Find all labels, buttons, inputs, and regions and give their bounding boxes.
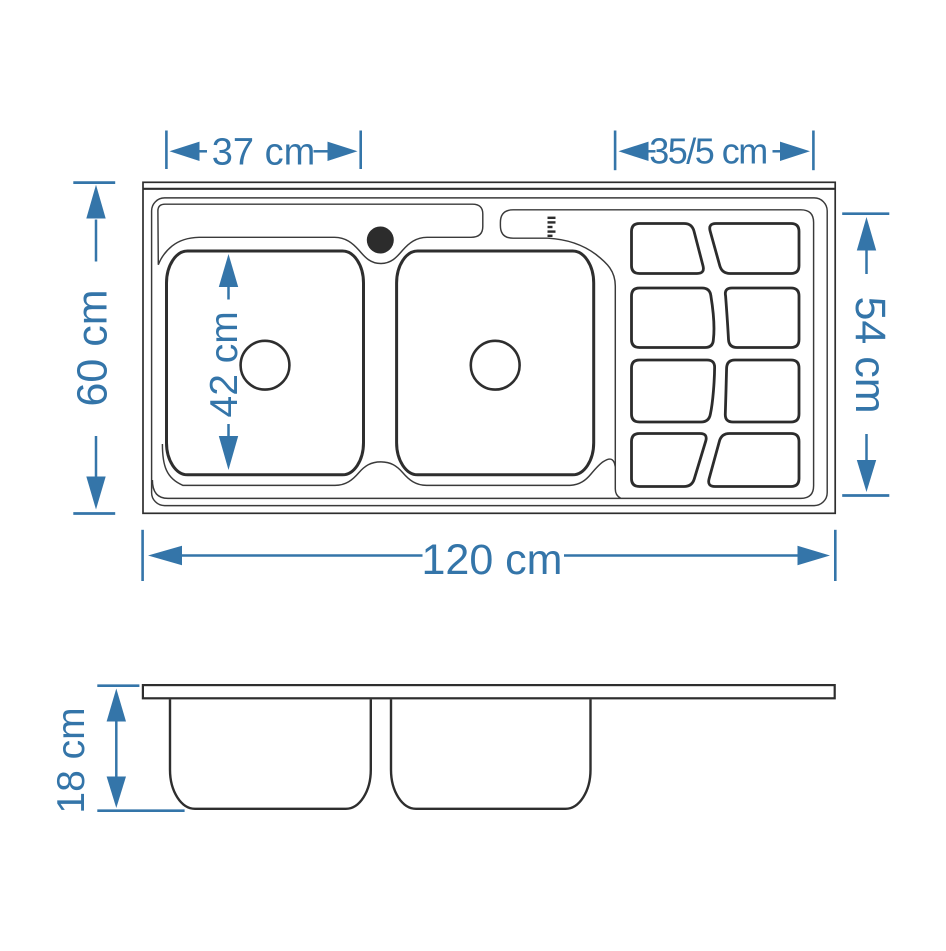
svg-text:60 cm: 60 cm bbox=[69, 289, 117, 406]
svg-text:18 cm: 18 cm bbox=[50, 707, 93, 813]
svg-text:120 cm: 120 cm bbox=[421, 536, 562, 584]
svg-text:35/5 cm: 35/5 cm bbox=[649, 130, 767, 171]
svg-text:42 cm: 42 cm bbox=[203, 311, 246, 417]
svg-text:54 cm: 54 cm bbox=[846, 296, 894, 413]
svg-text:37 cm: 37 cm bbox=[212, 132, 315, 174]
